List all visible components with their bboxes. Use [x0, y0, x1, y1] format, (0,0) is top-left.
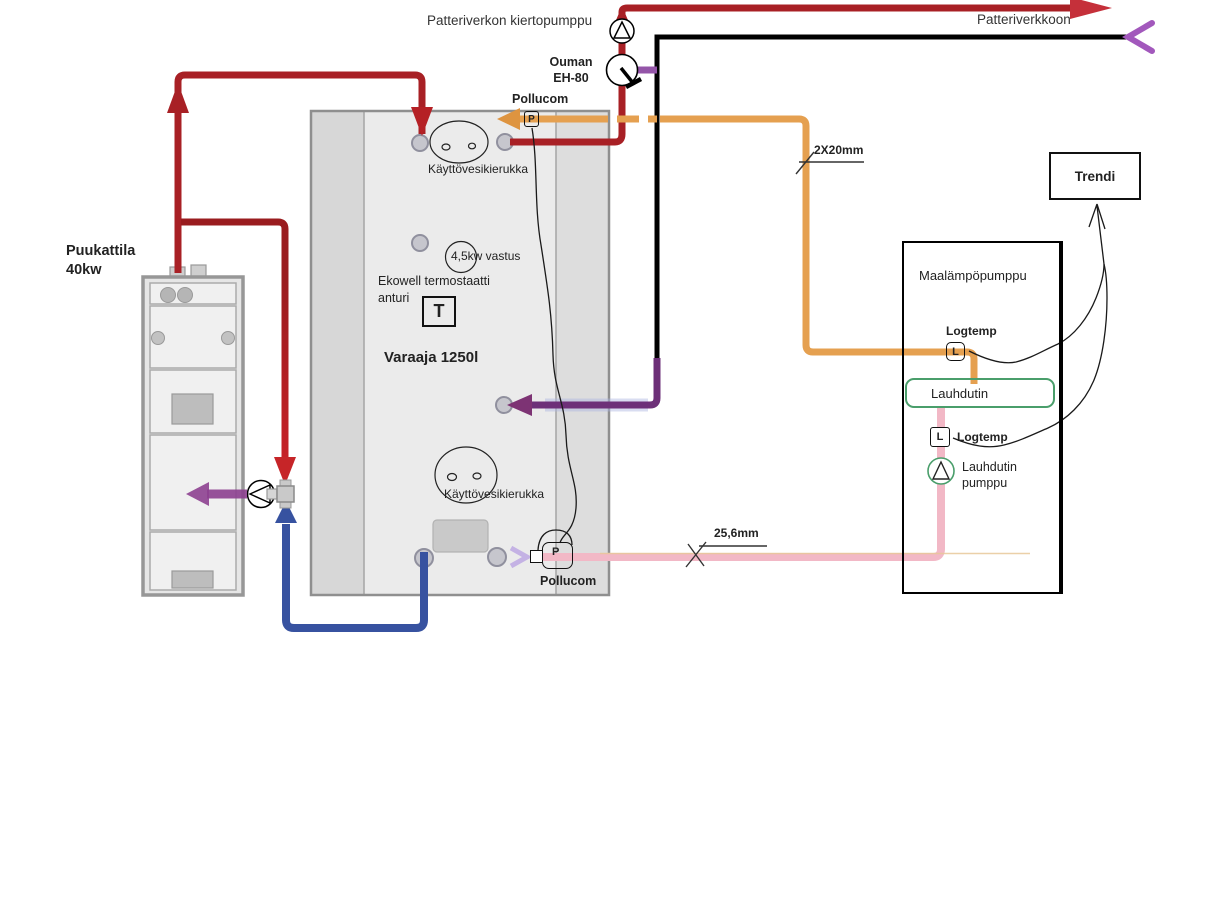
- fitting-nub: [280, 502, 291, 508]
- condenser-pump-label: Lauhdutin pumppu: [962, 459, 1017, 491]
- orange-dimension-label: 2X20mm: [814, 143, 863, 158]
- boiler-gauge: [161, 288, 176, 303]
- condenser-pump-line2: pumppu: [962, 476, 1007, 490]
- boiler-section: [150, 435, 236, 530]
- boiler-knob: [222, 332, 235, 345]
- purple-return-chevron: [1128, 23, 1152, 51]
- boiler-door: [172, 394, 213, 424]
- pink-dimension-label: 25,6mm: [714, 526, 759, 541]
- trend-box: Trendi: [1049, 152, 1141, 200]
- boiler-name-line1: Puukattila: [66, 243, 135, 259]
- tank-right-band: [556, 111, 609, 595]
- condenser-label: Lauhdutin: [931, 386, 988, 401]
- dimension-marks: [686, 152, 864, 567]
- valve-label: Ouman EH-80: [545, 54, 597, 86]
- logtemp-top-box: L: [946, 342, 965, 361]
- thermostat-label-line2: anturi: [378, 291, 409, 305]
- boiler-gauge: [178, 288, 193, 303]
- logtemp-bottom-label: Logtemp: [957, 430, 1008, 445]
- tank-port: [412, 235, 428, 251]
- valve-model: EH-80: [553, 71, 588, 85]
- boiler-name-label: Puukattila 40kw: [66, 242, 135, 280]
- fitting-stub: [267, 489, 277, 499]
- boiler-knob: [152, 332, 165, 345]
- wood-boiler: [143, 265, 243, 595]
- condenser-pump-line1: Lauhdutin: [962, 460, 1017, 474]
- boiler-ash-door: [172, 571, 213, 588]
- tank-left-band: [311, 111, 364, 595]
- logtemp-bottom-box: L: [930, 427, 950, 447]
- pollucom-top-box: P: [524, 111, 539, 127]
- logtemp-top-label: Logtemp: [946, 324, 997, 339]
- pollucom-top-label: Pollucom: [512, 92, 568, 107]
- pollucom-bottom-letter: P: [552, 546, 559, 558]
- logtemp-top-letter: L: [952, 346, 959, 358]
- pollucom-bottom-box: P: [542, 542, 573, 569]
- coil-bottom-label: Käyttövesikierukka: [444, 487, 544, 502]
- coil-top-label: Käyttövesikierukka: [428, 162, 528, 177]
- heater-label: 4,5kw vastus: [451, 249, 520, 264]
- tank-name-label: Varaaja 1250l: [384, 350, 478, 365]
- tank-element-cover: [433, 520, 488, 552]
- circulation-pump-label: Patteriverkon kiertopumppu: [427, 13, 592, 28]
- valve-brand: Ouman: [549, 55, 592, 69]
- thermostat-label: Ekowell termostaatti anturi: [378, 273, 490, 307]
- pollucom-bottom-label: Pollucom: [540, 574, 596, 589]
- thermostat-label-line1: Ekowell termostaatti: [378, 274, 490, 288]
- logtemp-bottom-letter: L: [937, 431, 944, 443]
- mixing-fitting: [277, 486, 294, 502]
- radiator-supply-label: Patteriverkkoon: [977, 12, 1071, 27]
- heat-pump-box: [902, 241, 1063, 594]
- tank-port: [412, 135, 428, 151]
- pollucom-top-letter: P: [528, 114, 535, 125]
- condenser-box: Lauhdutin: [905, 378, 1055, 408]
- trend-label: Trendi: [1075, 169, 1116, 184]
- red-arrow-to-radiators: [1070, 0, 1112, 19]
- trend-arrow-wire: [1089, 204, 1105, 264]
- heat-pump-name-label: Maalämpöpumppu: [919, 268, 1027, 283]
- boiler-name-line2: 40kw: [66, 262, 101, 278]
- tank-port: [488, 548, 506, 566]
- diagram-stage: Trendi Lauhdutin T L L P P Patteriverkon…: [0, 0, 1228, 921]
- red-up-arrow: [167, 83, 189, 113]
